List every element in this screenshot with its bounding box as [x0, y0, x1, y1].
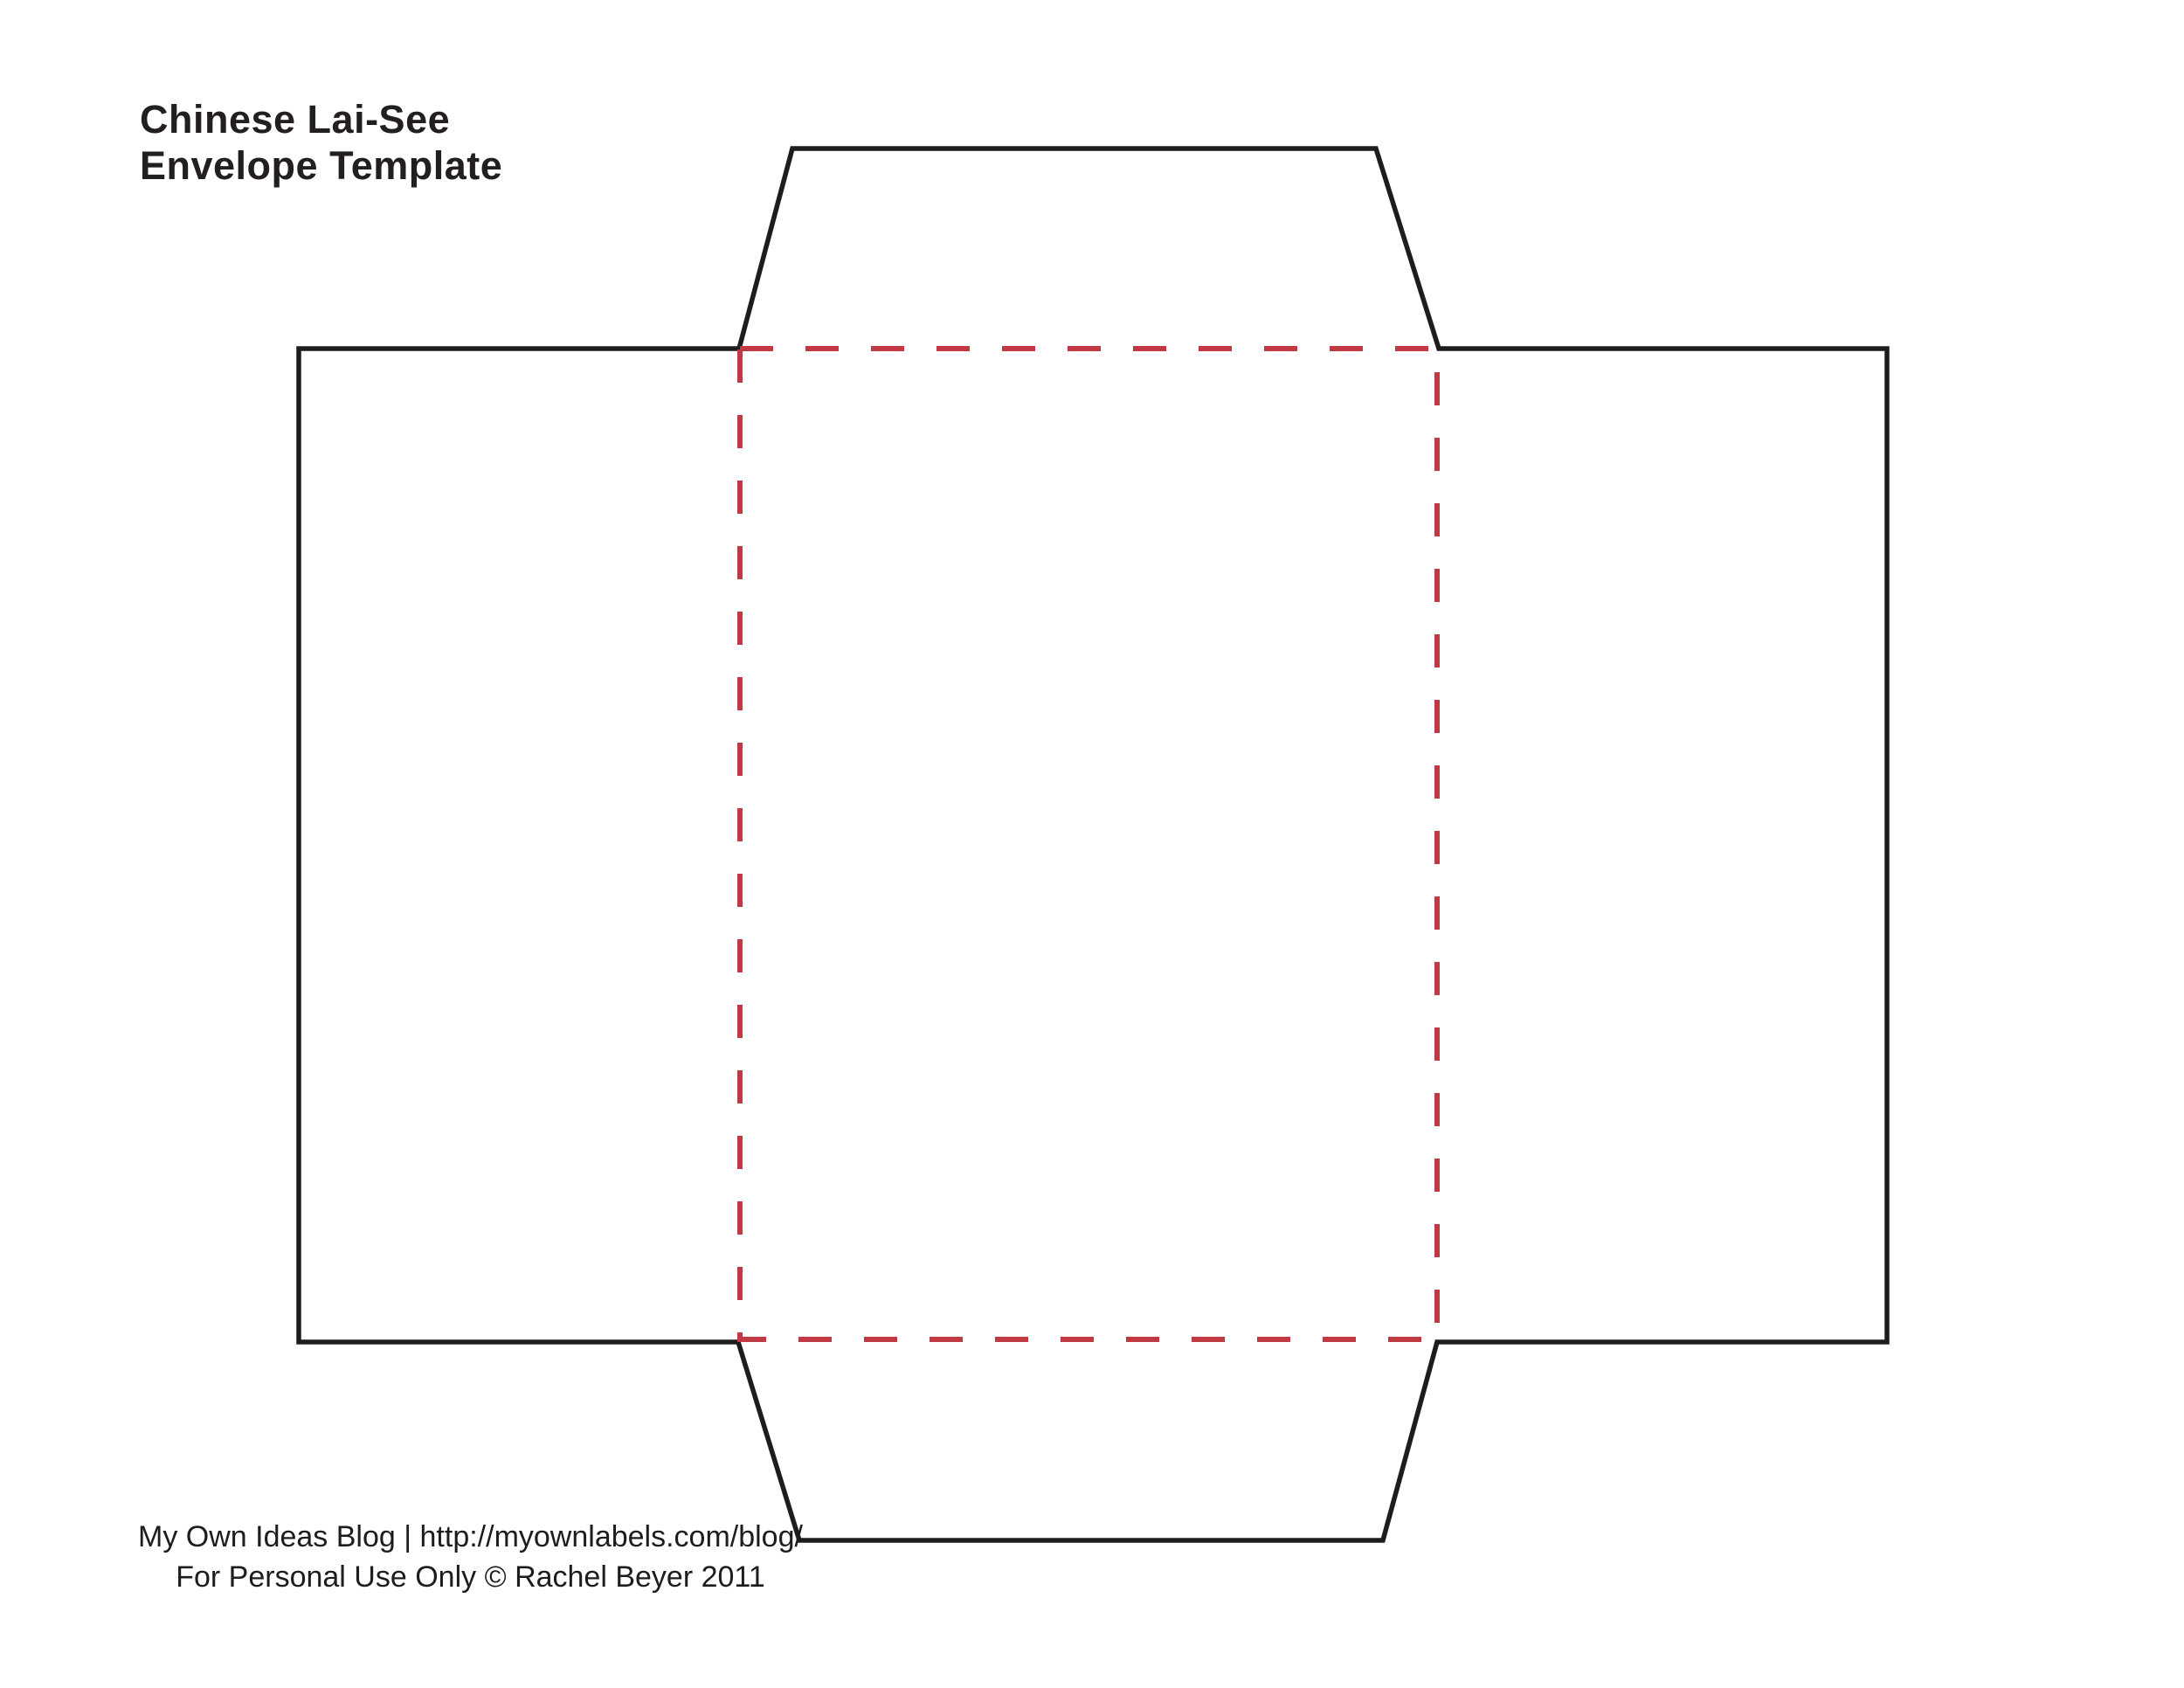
envelope-template-drawing	[0, 0, 2184, 1688]
template-page: Chinese Lai-See Envelope Template My Own…	[0, 0, 2184, 1688]
footer-copyright-line: For Personal Use Only © Rachel Beyer 201…	[138, 1557, 803, 1597]
footer-blog-line: My Own Ideas Blog | http://myownlabels.c…	[138, 1517, 803, 1557]
envelope-cut-outline	[299, 149, 1887, 1540]
footer-credit: My Own Ideas Blog | http://myownlabels.c…	[138, 1517, 803, 1597]
